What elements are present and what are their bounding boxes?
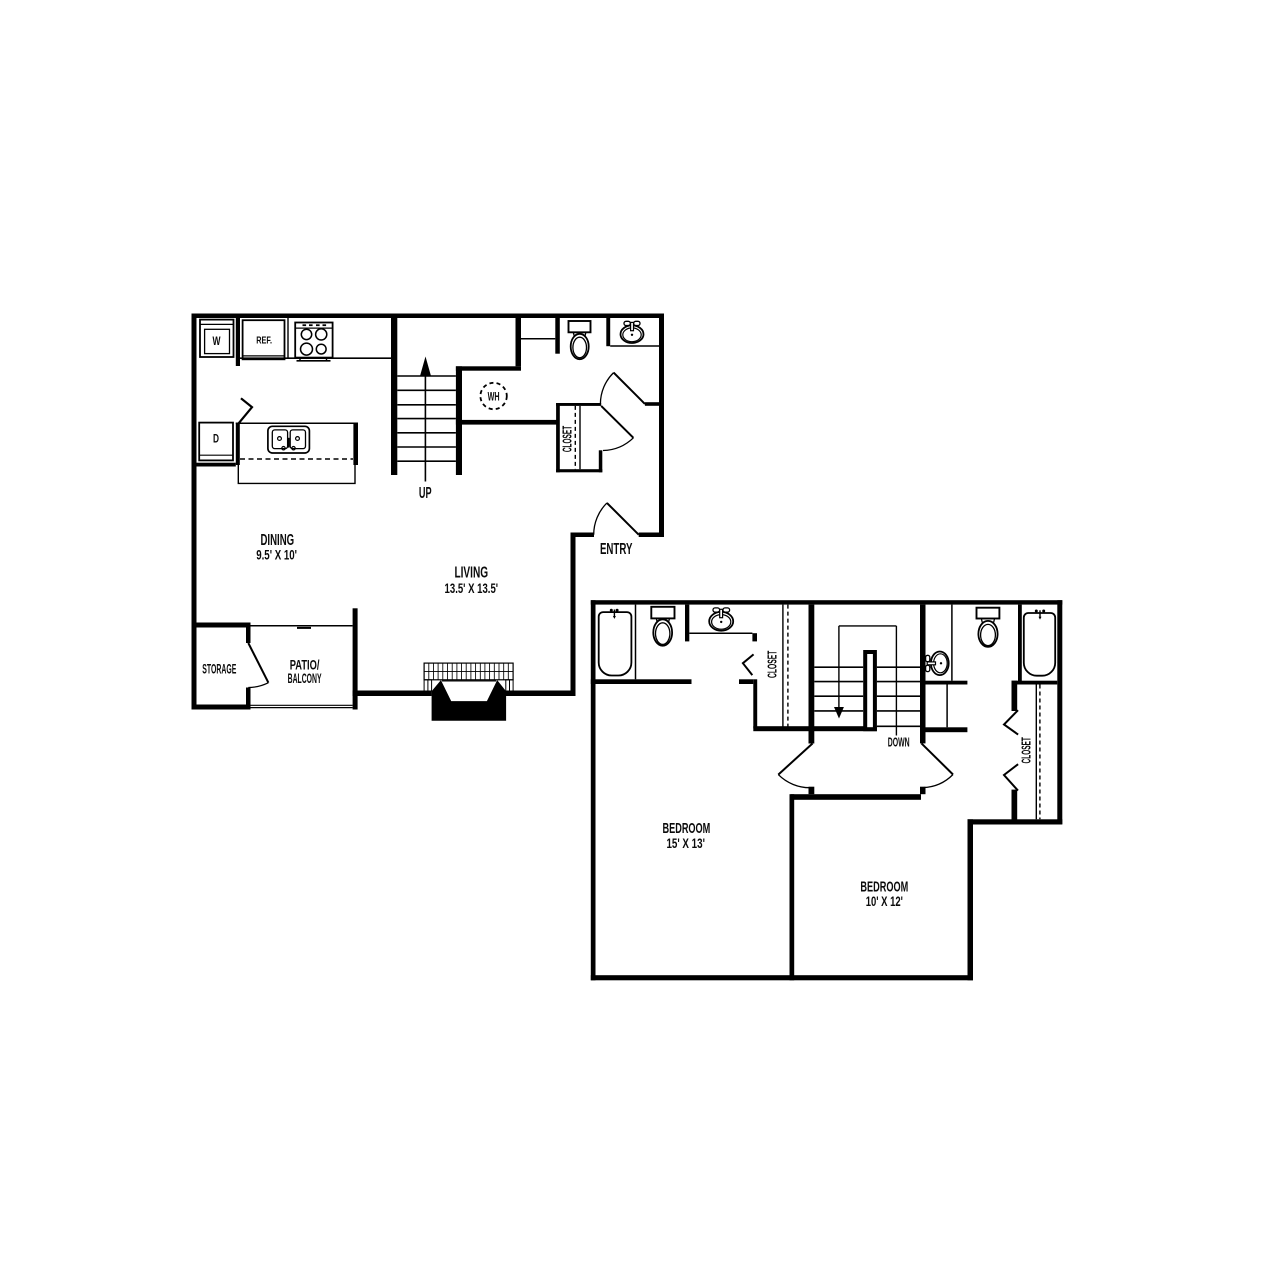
svg-text:DINING: DINING [260, 532, 294, 549]
svg-text:BEDROOM: BEDROOM [663, 821, 711, 837]
svg-text:STORAGE: STORAGE [202, 661, 236, 677]
svg-text:ENTRY: ENTRY [600, 541, 633, 558]
svg-text:13.5' X 13.5': 13.5' X 13.5' [445, 581, 499, 596]
svg-text:D: D [213, 434, 219, 446]
svg-text:LIVING: LIVING [454, 565, 488, 582]
svg-text:REF.: REF. [256, 335, 272, 346]
svg-text:10' X 12': 10' X 12' [866, 894, 903, 909]
svg-text:15' X 13': 15' X 13' [666, 836, 705, 851]
svg-text:DOWN: DOWN [888, 734, 910, 749]
svg-text:CLOSET: CLOSET [1019, 737, 1034, 763]
svg-text:WH: WH [488, 390, 500, 404]
svg-text:CLOSET: CLOSET [560, 426, 575, 452]
svg-text:CLOSET: CLOSET [765, 651, 780, 678]
svg-text:BEDROOM: BEDROOM [860, 880, 908, 896]
svg-text:9.5' X 10': 9.5' X 10' [256, 547, 297, 562]
svg-text:W: W [213, 334, 222, 348]
svg-text:BALCONY: BALCONY [288, 670, 322, 686]
svg-text:UP: UP [419, 485, 432, 502]
